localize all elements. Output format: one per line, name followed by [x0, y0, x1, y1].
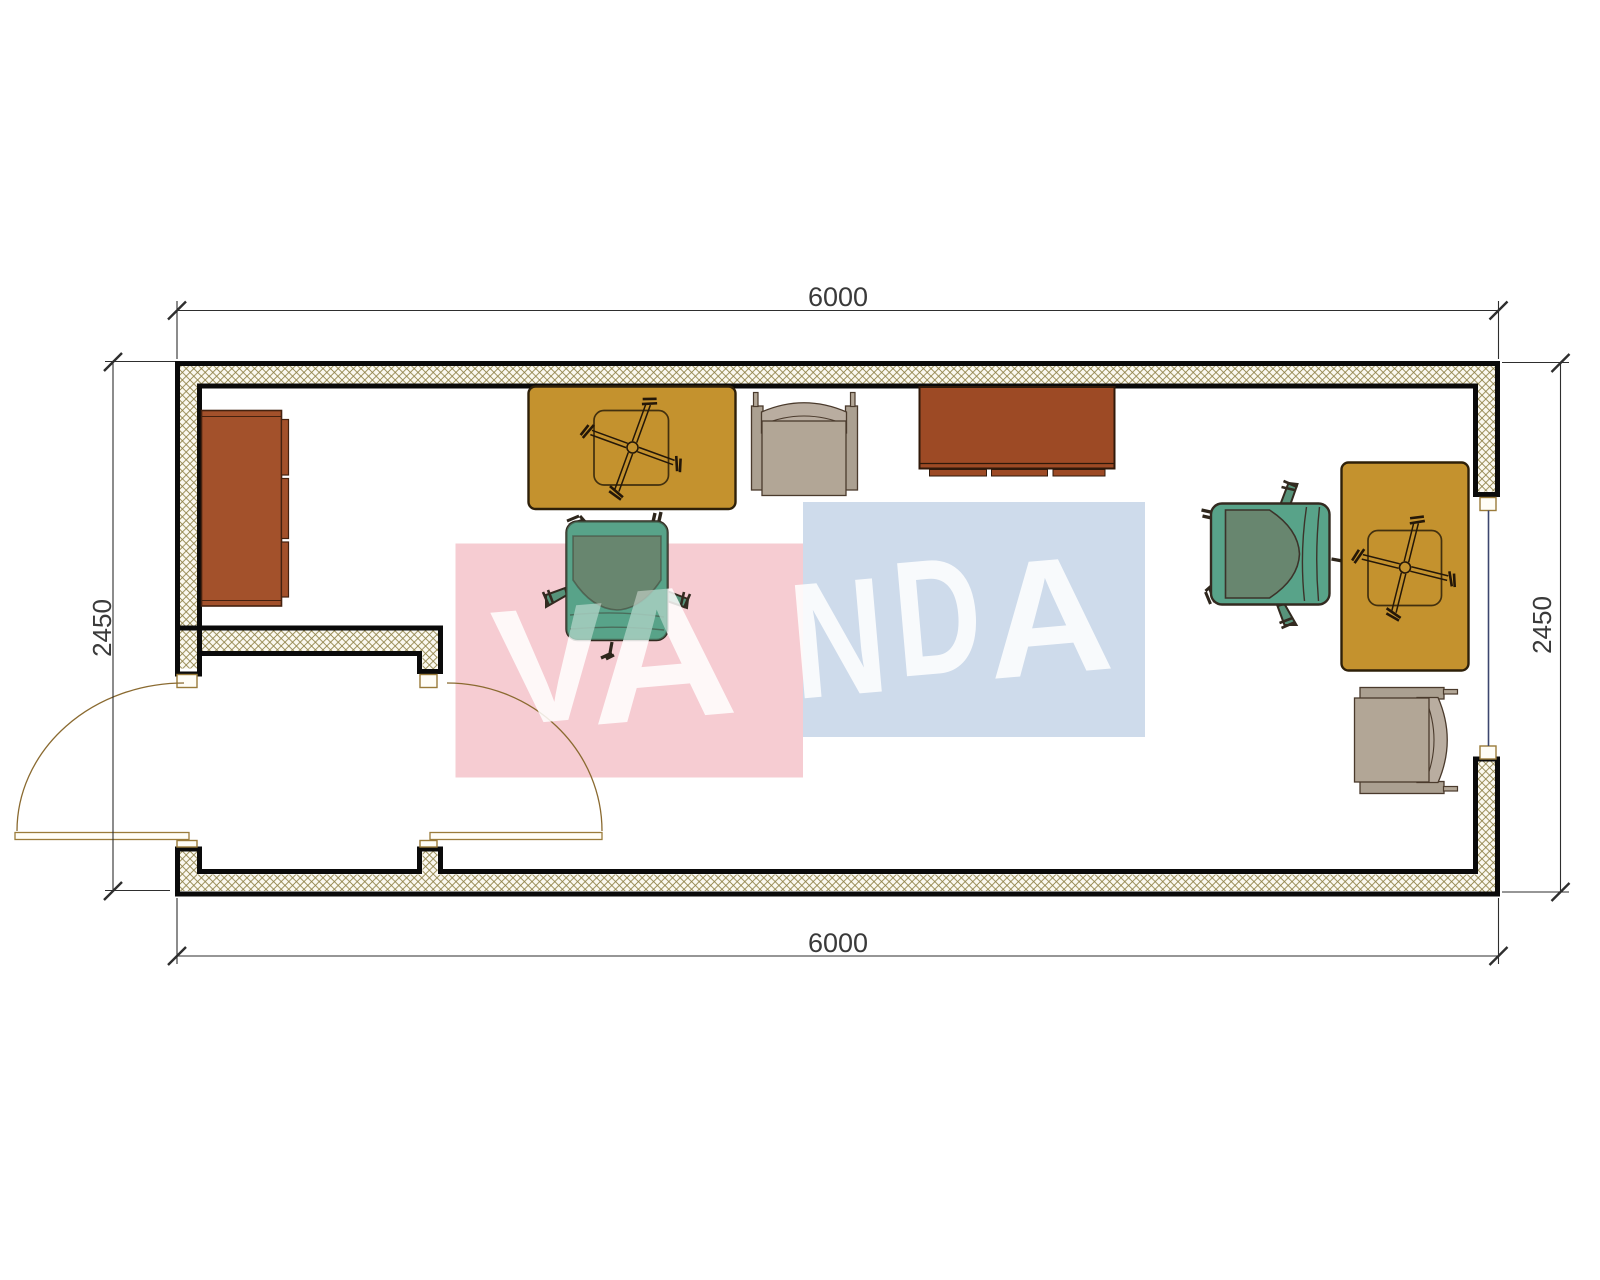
svg-text:D: D — [886, 521, 989, 712]
svg-text:A: A — [978, 520, 1119, 714]
svg-text:6000: 6000 — [808, 928, 868, 958]
svg-text:2450: 2450 — [1527, 596, 1557, 654]
svg-text:6000: 6000 — [808, 282, 868, 312]
svg-text:2450: 2450 — [87, 599, 117, 657]
svg-text:N: N — [783, 542, 894, 734]
